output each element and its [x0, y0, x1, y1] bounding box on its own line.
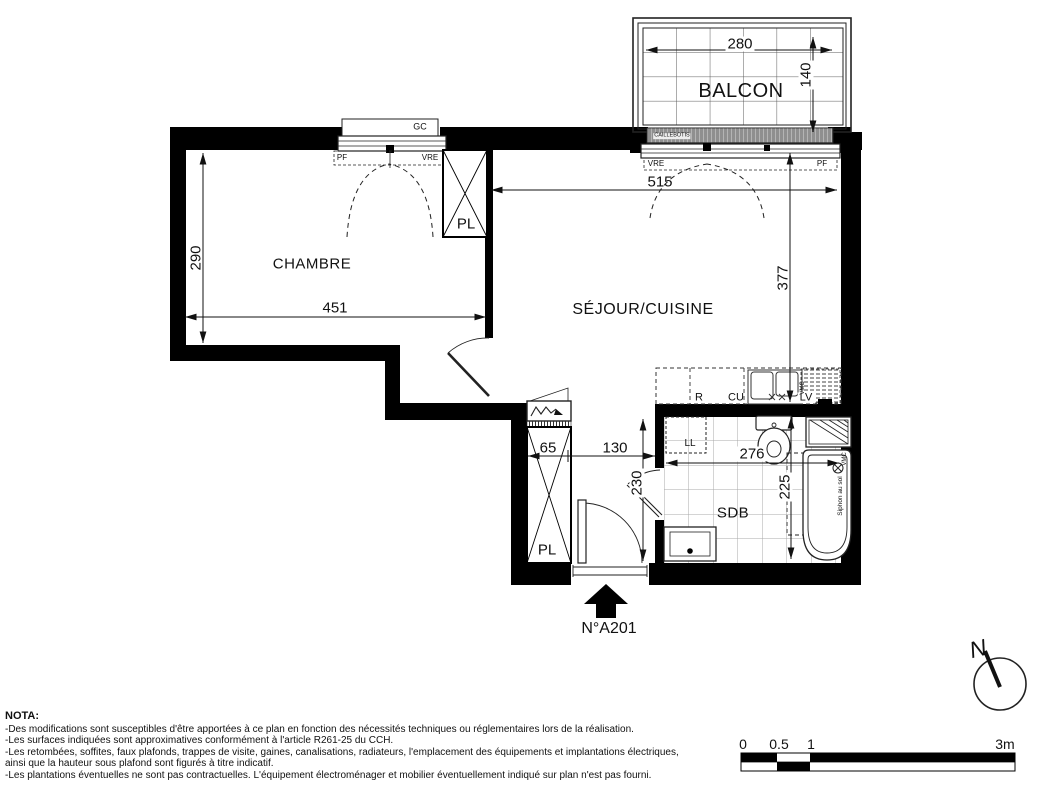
vent-box	[818, 399, 832, 408]
room-label-chambre: CHAMBRE	[273, 257, 352, 272]
dim-closet-width: 65	[540, 441, 557, 456]
closet-label-bedroom: PL	[457, 217, 475, 232]
bedroom-door	[448, 338, 489, 396]
scale-label-3m: 3m	[995, 737, 1014, 751]
siphon-label: Siphon au sol	[838, 476, 845, 515]
vmc-kitchen-label: VMC	[800, 381, 806, 394]
pf-left-label: PF	[337, 154, 347, 162]
pf-right-label: PF	[817, 160, 827, 168]
nota-line: ainsi que la hauteur sous plafond sont f…	[5, 758, 685, 770]
room-label-sdb: SDB	[717, 506, 749, 521]
dim-hall-depth: 230	[630, 468, 645, 497]
dim-balcony-depth: 140	[799, 60, 814, 89]
vmc-bath-label: VMC	[842, 452, 848, 465]
gc-label: GC	[413, 123, 427, 132]
washing-machine-label: LL	[684, 439, 695, 449]
vre-left-label: VRE	[422, 154, 438, 162]
hall-radiator	[527, 388, 571, 427]
dim-bedroom-depth: 290	[189, 245, 204, 270]
unit-number-label: N°A201	[581, 621, 636, 637]
scale-bar	[741, 753, 1015, 771]
bedroom-window	[334, 119, 446, 237]
dim-bath-width: 276	[737, 447, 766, 462]
vre-right-label: VRE	[648, 160, 664, 168]
entrance-door	[573, 500, 647, 577]
floor-plan-drawing	[0, 0, 1058, 800]
floor-plan-page: BALCON CHAMBRE SÉJOUR/CUISINE SDB PL PL …	[0, 0, 1058, 800]
bathroom-vanity	[664, 527, 716, 561]
dim-living-depth: 377	[776, 265, 791, 290]
cooktop-label: CU	[728, 393, 744, 404]
nota-line: -Les retombées, soffites, faux plafonds,…	[5, 747, 685, 759]
nota-line: -Les surfaces indiquées sont approximati…	[5, 735, 685, 747]
fridge-label: R	[695, 393, 703, 404]
dim-hall-width: 130	[602, 441, 627, 456]
dim-bath-depth: 225	[778, 472, 793, 501]
scale-label-0: 0	[739, 737, 747, 751]
scale-label-1: 1	[807, 737, 815, 751]
dim-living-width: 515	[647, 175, 672, 190]
closet-label-hall: PL	[538, 543, 556, 558]
nota-line: -Des modifications sont susceptibles d'ê…	[5, 724, 685, 736]
entry-arrow-icon	[584, 584, 628, 618]
room-label-sejour-cuisine: SÉJOUR/CUISINE	[572, 302, 713, 318]
caillebotis-label: CAILLEBOTIS	[653, 133, 690, 139]
nota-line: -Les plantations éventuelles ne sont pas…	[5, 770, 685, 782]
bathroom-shelf	[806, 417, 851, 447]
dim-balcony-width: 280	[725, 37, 754, 52]
nota-title: NOTA:	[5, 711, 685, 723]
room-label-balcon: BALCON	[698, 81, 783, 101]
scale-label-05: 0.5	[769, 737, 788, 751]
nota-block: NOTA: -Des modifications sont susceptibl…	[5, 711, 685, 782]
dim-bedroom-width: 451	[322, 301, 347, 316]
